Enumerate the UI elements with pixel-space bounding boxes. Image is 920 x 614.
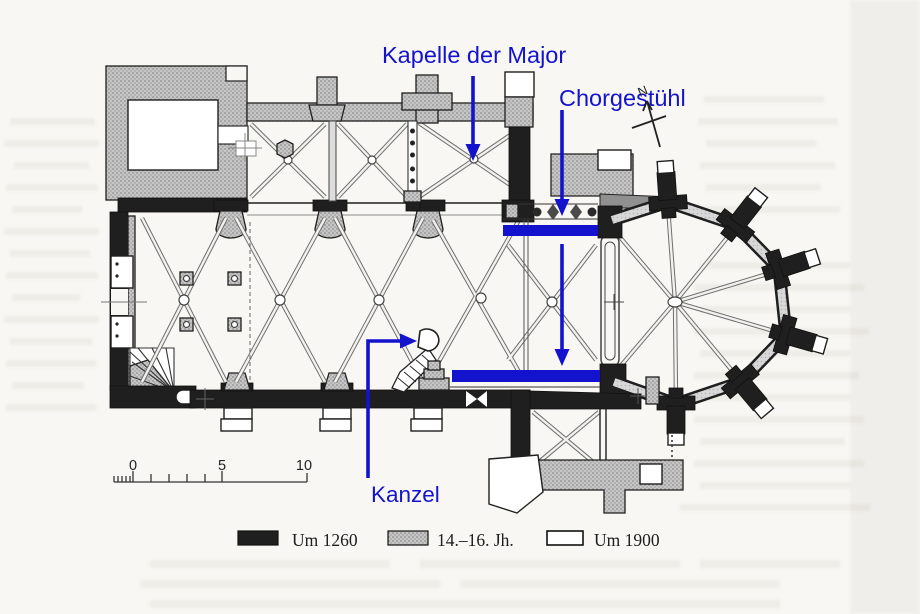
chorgestuehl-label: Chorgestühl [559,85,686,111]
legend-swatch-black [238,531,278,545]
west-tower [106,66,248,212]
legend: Um 1260 14.–16. Jh. Um 1900 [238,530,660,550]
legend-swatch-white [547,531,583,545]
scale-tick-0: 0 [129,458,137,474]
legend-label-1260: Um 1260 [292,530,358,550]
legend-swatch-gray [388,531,428,545]
chapel-divider-wall [329,121,336,201]
scale-tick-10: 10 [296,458,312,474]
scale-tick-5: 5 [218,458,226,474]
font-ornament [277,140,293,158]
church-floor-plan: Kapelle der Major Chorgestühl Kanzel N 0… [0,0,920,614]
scanned-page: Kapelle der Major Chorgestühl Kanzel N 0… [0,0,920,614]
kanzel-label: Kanzel [371,482,440,507]
legend-label-1900: Um 1900 [594,530,660,550]
choir-stall-bar-north [503,225,598,236]
legend-label-1416: 14.–16. Jh. [437,530,514,550]
kapelle-label: Kapelle der Major [382,42,566,68]
choir-stall-bar-south [452,370,600,382]
page-edge-shade [850,0,920,614]
spiral-stair [130,348,174,392]
